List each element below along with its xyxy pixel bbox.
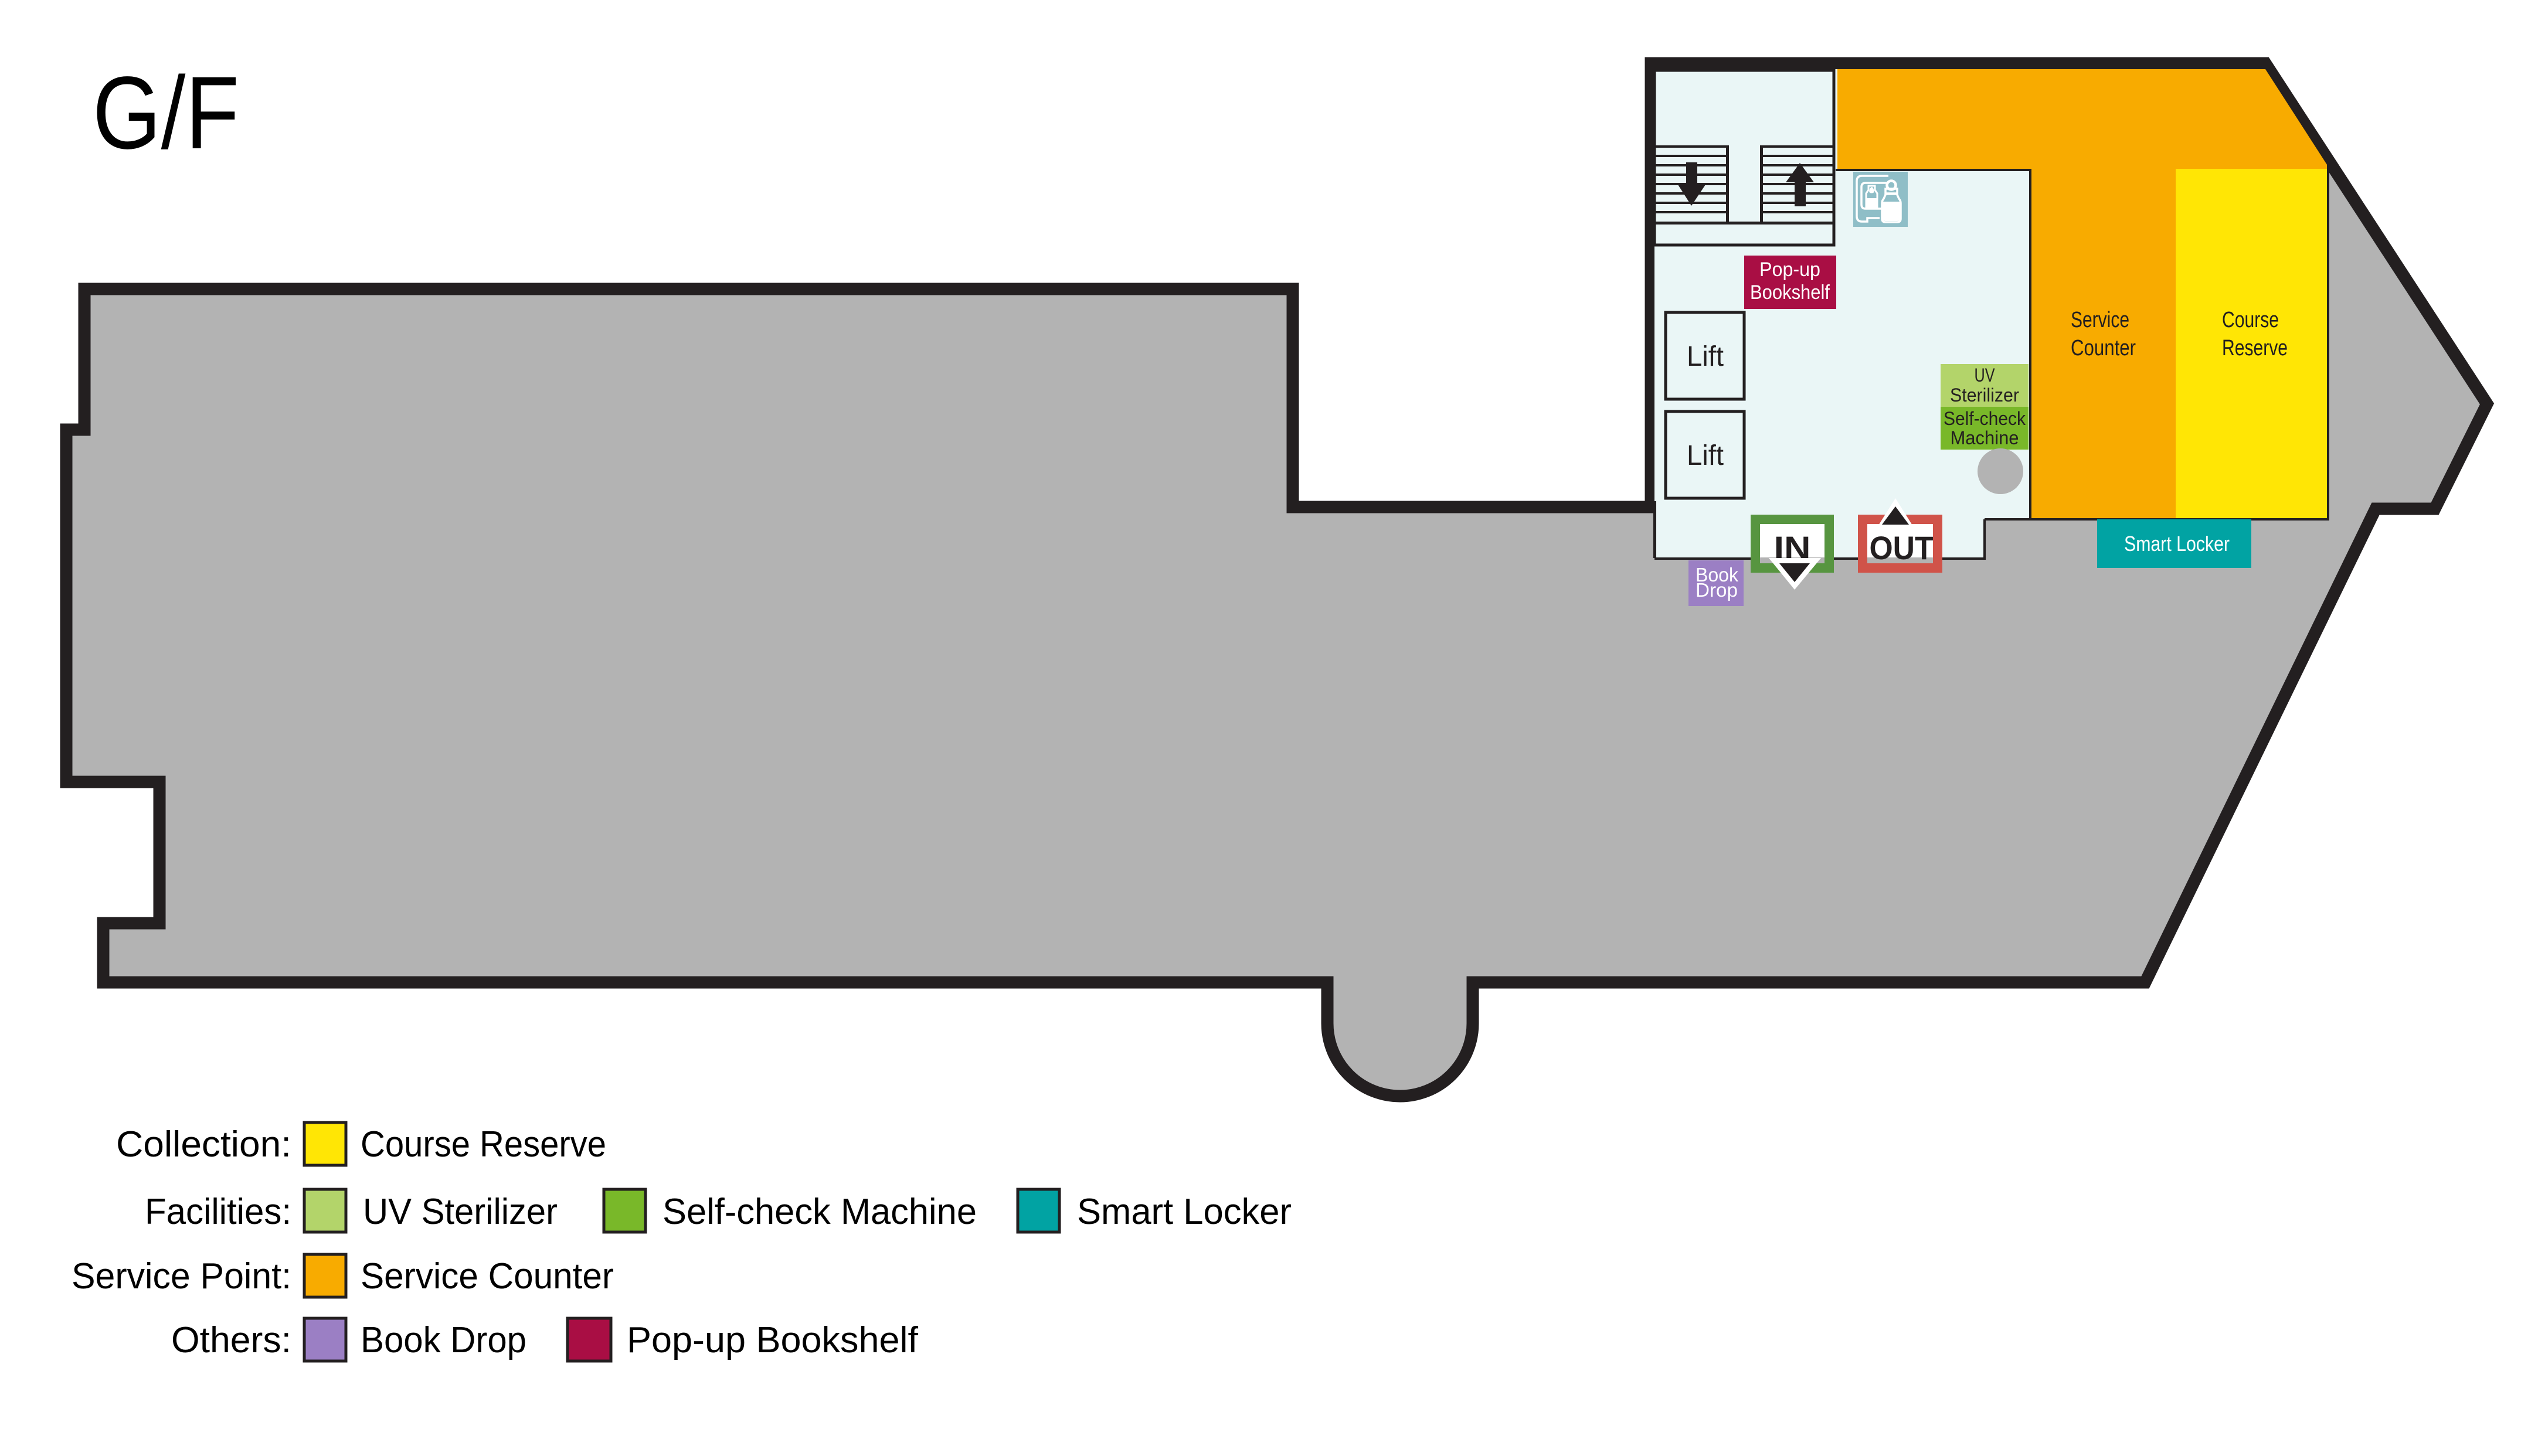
svg-text:UV Sterilizer: UV Sterilizer: [363, 1192, 558, 1232]
svg-text:Lift: Lift: [1687, 341, 1724, 372]
svg-text:Service Counter: Service Counter: [361, 1256, 614, 1297]
svg-text:Facilities:: Facilities:: [145, 1192, 291, 1232]
svg-text:G/F: G/F: [93, 56, 239, 171]
svg-text:Self-check Machine: Self-check Machine: [662, 1192, 977, 1232]
svg-text:OUT: OUT: [1870, 529, 1934, 566]
svg-text:Service Point:: Service Point:: [72, 1256, 291, 1297]
svg-text:Bookshelf: Bookshelf: [1750, 281, 1830, 304]
svg-text:Smart Locker: Smart Locker: [2124, 532, 2230, 556]
svg-text:Book Drop: Book Drop: [361, 1320, 526, 1360]
svg-text:Smart Locker: Smart Locker: [1077, 1192, 1292, 1232]
svg-text:Machine: Machine: [1951, 427, 2019, 448]
svg-text:UV: UV: [1975, 365, 1996, 386]
svg-text:Course: Course: [2222, 308, 2279, 332]
svg-text:Course Reserve: Course Reserve: [361, 1124, 606, 1165]
svg-text:Pop-up Bookshelf: Pop-up Bookshelf: [627, 1320, 919, 1360]
svg-text:Lift: Lift: [1687, 440, 1724, 471]
svg-text:Collection:: Collection:: [116, 1124, 291, 1165]
svg-text:Self-check: Self-check: [1944, 408, 2026, 429]
svg-text:Service: Service: [2071, 308, 2129, 332]
svg-text:Counter: Counter: [2071, 336, 2136, 360]
svg-text:Drop: Drop: [1696, 579, 1738, 601]
svg-text:Sterilizer: Sterilizer: [1950, 385, 2019, 406]
svg-text:Reserve: Reserve: [2222, 336, 2288, 360]
svg-text:Pop-up: Pop-up: [1759, 258, 1820, 281]
svg-text:Others:: Others:: [171, 1320, 291, 1360]
